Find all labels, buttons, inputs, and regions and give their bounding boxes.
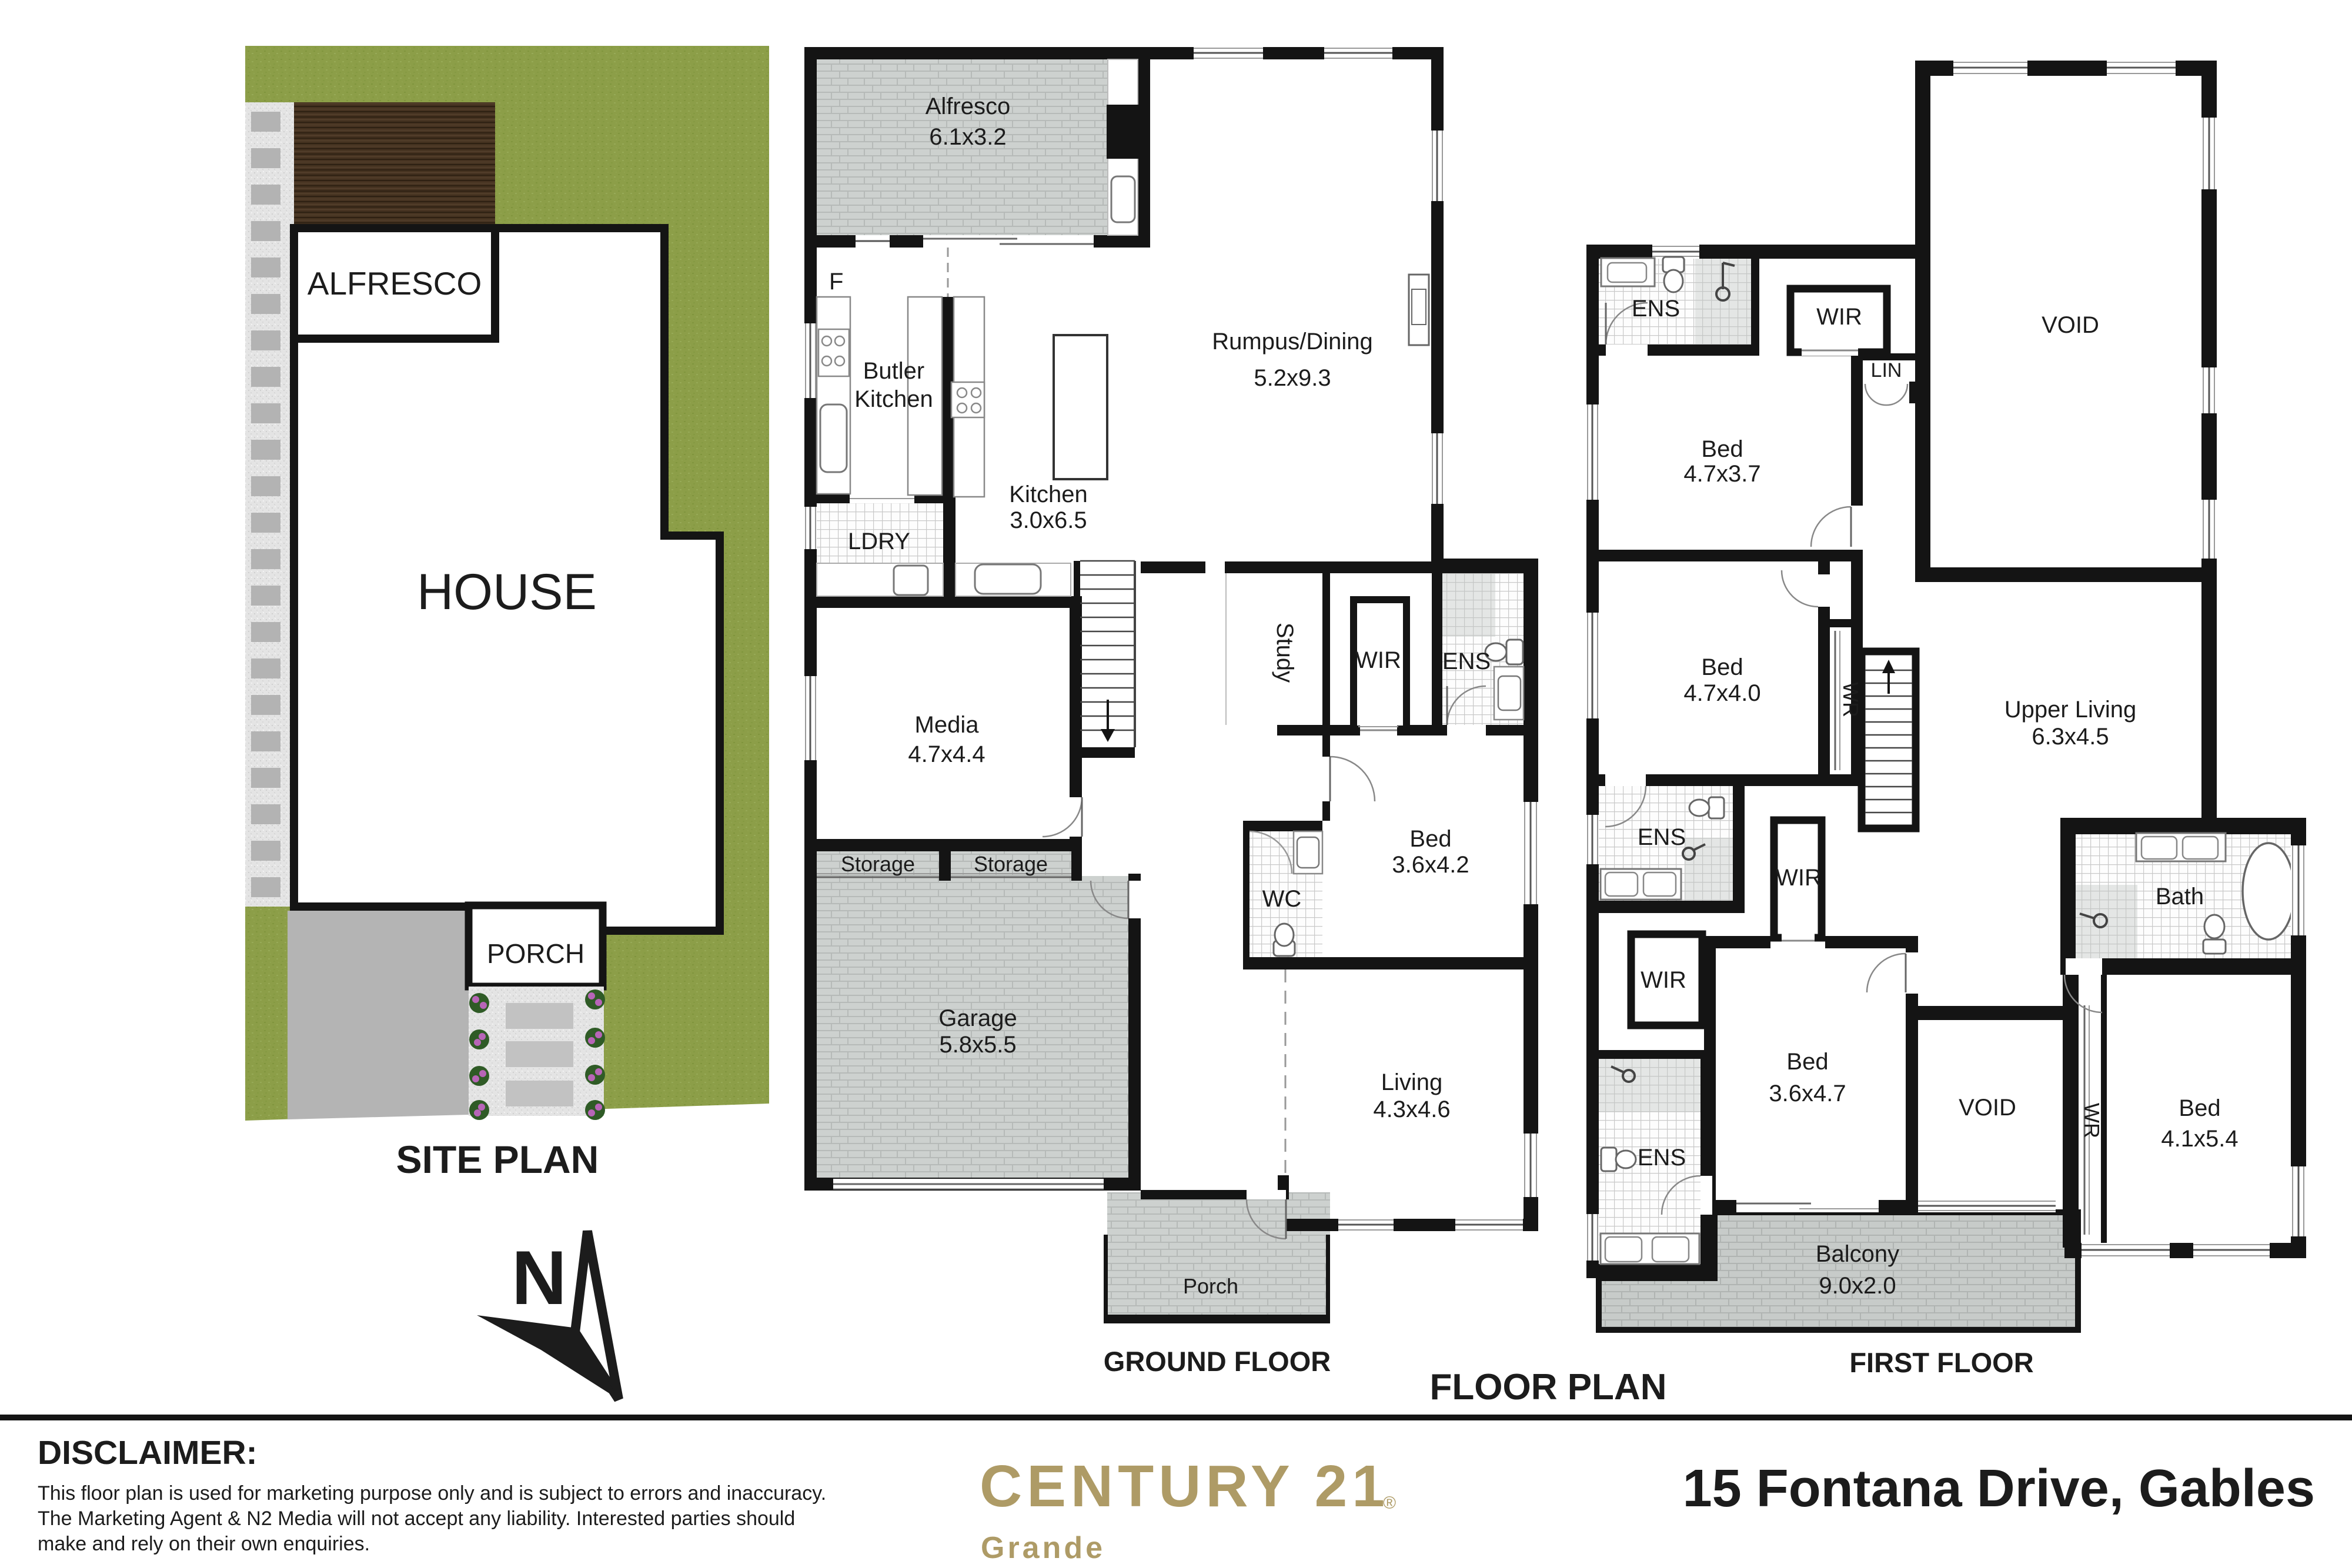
svg-text:ENS: ENS: [1638, 824, 1686, 850]
svg-text:ENS: ENS: [1442, 648, 1491, 674]
svg-text:LIN: LIN: [1871, 359, 1902, 382]
svg-text:This floor plan is used for ma: This floor plan is used for marketing pu…: [38, 1482, 826, 1505]
svg-text:15 Fontana Drive, Gables: 15 Fontana Drive, Gables: [1683, 1459, 2315, 1518]
svg-text:6.3x4.5: 6.3x4.5: [2032, 724, 2109, 750]
svg-text:Bed: Bed: [1701, 436, 1743, 462]
svg-text:5.2x9.3: 5.2x9.3: [1254, 365, 1331, 391]
svg-text:Storage: Storage: [841, 852, 915, 876]
svg-text:Alfresco: Alfresco: [926, 93, 1011, 119]
svg-text:3.6x4.7: 3.6x4.7: [1769, 1081, 1846, 1106]
svg-text:VOID: VOID: [1959, 1095, 2016, 1121]
svg-text:make and rely on their own enq: make and rely on their own enquiries.: [38, 1533, 370, 1555]
svg-text:4.3x4.6: 4.3x4.6: [1373, 1096, 1450, 1122]
svg-text:Bed: Bed: [1409, 826, 1451, 852]
svg-text:ALFRESCO: ALFRESCO: [308, 265, 482, 302]
svg-text:Bed: Bed: [2179, 1095, 2220, 1121]
svg-text:WIR: WIR: [1816, 304, 1862, 330]
svg-text:®: ®: [1383, 1493, 1396, 1513]
svg-text:6.1x3.2: 6.1x3.2: [929, 124, 1006, 150]
svg-text:ENS: ENS: [1632, 296, 1680, 322]
svg-text:Study: Study: [1272, 623, 1298, 683]
svg-text:WIR: WIR: [1776, 865, 1822, 891]
svg-text:WR: WR: [1839, 682, 1863, 717]
svg-text:Garage: Garage: [938, 1005, 1017, 1031]
svg-text:Storage: Storage: [974, 852, 1048, 876]
svg-text:Kitchen: Kitchen: [1009, 482, 1087, 507]
svg-text:4.7x3.7: 4.7x3.7: [1683, 461, 1760, 487]
svg-text:WIR: WIR: [1355, 647, 1401, 673]
svg-text:HOUSE: HOUSE: [417, 564, 597, 620]
svg-text:Balcony: Balcony: [1816, 1241, 1899, 1267]
svg-text:GROUND FLOOR: GROUND FLOOR: [1104, 1346, 1331, 1377]
svg-text:SITE PLAN: SITE PLAN: [396, 1138, 599, 1181]
svg-text:3.0x6.5: 3.0x6.5: [1010, 507, 1087, 533]
svg-text:Porch: Porch: [1183, 1274, 1238, 1298]
svg-text:LDRY: LDRY: [848, 529, 910, 554]
svg-text:Upper Living: Upper Living: [2004, 697, 2137, 723]
svg-text:Grande: Grande: [981, 1531, 1105, 1565]
svg-text:Bed: Bed: [1701, 654, 1743, 680]
svg-text:Living: Living: [1381, 1069, 1443, 1095]
svg-text:PORCH: PORCH: [487, 938, 584, 969]
svg-text:WC: WC: [1262, 886, 1302, 912]
svg-text:The Marketing Agent & N2 Media: The Marketing Agent & N2 Media will not …: [38, 1507, 795, 1530]
svg-text:DISCLAIMER:: DISCLAIMER:: [38, 1434, 258, 1472]
svg-text:4.7x4.4: 4.7x4.4: [908, 741, 985, 767]
svg-text:4.1x5.4: 4.1x5.4: [2161, 1126, 2238, 1152]
svg-text:FLOOR PLAN: FLOOR PLAN: [1430, 1367, 1667, 1407]
svg-text:WIR: WIR: [1641, 967, 1686, 993]
svg-text:Rumpus/Dining: Rumpus/Dining: [1212, 329, 1372, 355]
svg-text:ENS: ENS: [1638, 1145, 1686, 1171]
svg-text:Butler: Butler: [863, 358, 925, 384]
svg-text:F: F: [829, 269, 843, 295]
svg-text:Bed: Bed: [1786, 1049, 1828, 1075]
svg-text:Kitchen: Kitchen: [854, 386, 933, 412]
svg-text:WR: WR: [2080, 1103, 2104, 1138]
svg-text:Media: Media: [915, 712, 980, 738]
svg-text:VOID: VOID: [2042, 312, 2099, 338]
svg-text:5.8x5.5: 5.8x5.5: [939, 1032, 1016, 1058]
svg-text:3.6x4.2: 3.6x4.2: [1392, 852, 1469, 878]
svg-text:N: N: [512, 1235, 567, 1320]
svg-text:CENTURY 21: CENTURY 21: [980, 1453, 1389, 1519]
svg-text:FIRST FLOOR: FIRST FLOOR: [1849, 1347, 2033, 1378]
svg-text:4.7x4.0: 4.7x4.0: [1683, 680, 1760, 706]
svg-text:9.0x2.0: 9.0x2.0: [1819, 1273, 1896, 1299]
svg-text:Bath: Bath: [2156, 884, 2204, 910]
